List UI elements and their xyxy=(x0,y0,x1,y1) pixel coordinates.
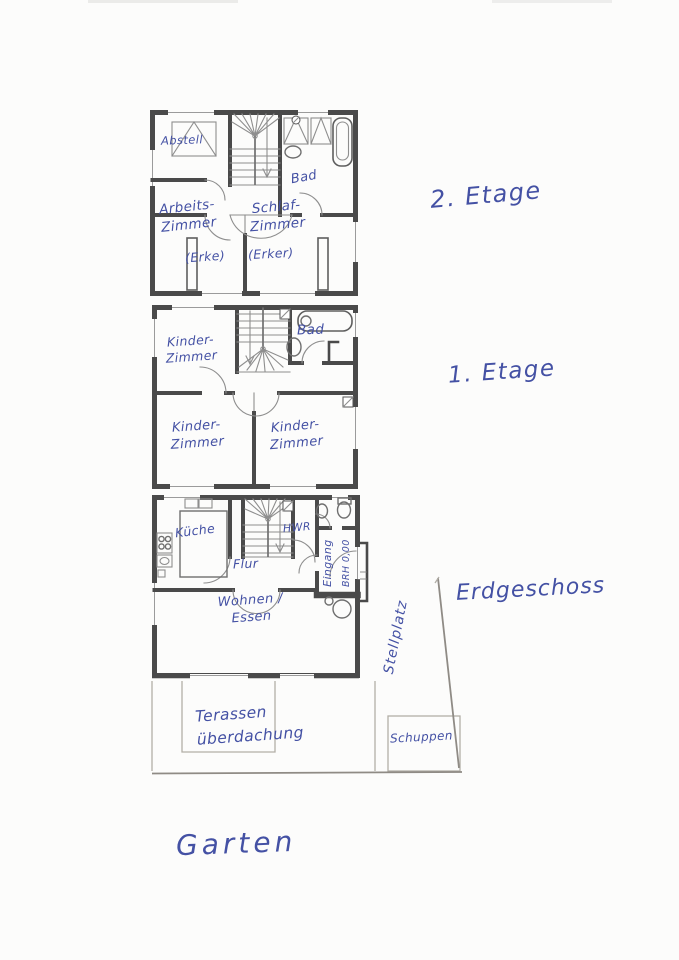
label-garten: Garten xyxy=(175,824,297,865)
floor2-staircase xyxy=(230,114,280,185)
label-floor2-etage: 2. Etage xyxy=(429,175,543,216)
label-erker: (Erker) xyxy=(248,245,294,264)
room-label-arbeitszimmer: Arbeits- Zimmer xyxy=(154,196,221,238)
label-brh: BRH 0,00 xyxy=(341,533,353,593)
sink xyxy=(157,555,172,567)
room-label-kinderzimmer-left: Kinder- Zimmer xyxy=(165,417,229,455)
room-label-wohnen-essen: Wohnen / Essen xyxy=(211,590,291,629)
pillar xyxy=(318,238,328,290)
room-label-bad-f1: Bad xyxy=(297,322,325,340)
scan-artifact xyxy=(492,0,612,3)
property-boundary-bottom xyxy=(152,772,462,774)
floorplan-sheet: 2. Etage 1. Etage Erdgeschoss Garten Ste… xyxy=(0,0,679,960)
stove xyxy=(157,533,172,553)
room-label-kinderzimmer-top: Kinder- Zimmer xyxy=(161,331,221,367)
label-floor1-etage: 1. Etage xyxy=(447,354,556,391)
room-label-schlafzimmer: Schlaf- Zimmer xyxy=(241,196,314,237)
label-schuppen: Schuppen xyxy=(390,728,454,747)
label-terrasse: Terassen überdachung xyxy=(195,698,305,752)
label-erke: (Erke) xyxy=(184,248,225,267)
room-label-kinderzimmer-right: Kinder- Zimmer xyxy=(262,416,331,455)
room-label-flur: Flur xyxy=(233,556,259,573)
room-label-hwr: HWR xyxy=(282,520,311,537)
outdoor-drawing xyxy=(140,570,480,785)
room-label-eingang: Eingang xyxy=(321,529,335,597)
room-label-abstell: Abstell xyxy=(161,132,203,148)
bathtub xyxy=(333,118,352,166)
washbasin xyxy=(285,146,301,158)
scan-artifact xyxy=(88,0,238,3)
